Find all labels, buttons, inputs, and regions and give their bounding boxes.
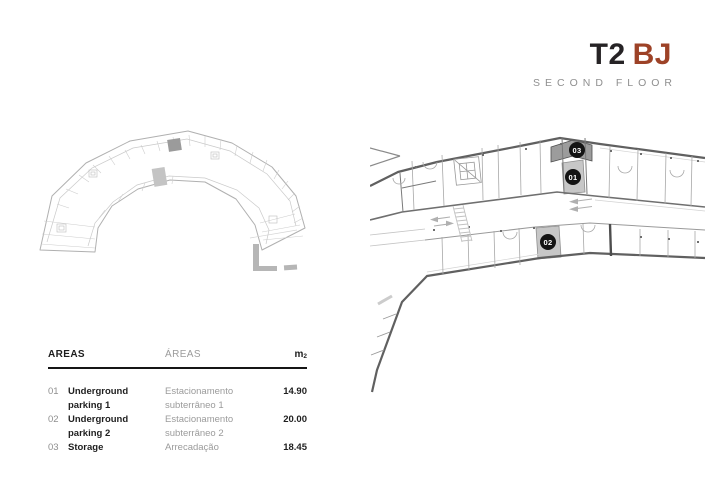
page-title: T2BJ <box>533 40 672 70</box>
table-row: 03 Storage Arrecadação 18.45 <box>48 441 307 455</box>
row-area-value: 14.90 <box>283 385 307 399</box>
areas-table: AREAS ÁREAS m2 01 Underground parking 1 … <box>48 349 307 455</box>
floor-subtitle: SECOND FLOOR <box>533 77 677 89</box>
header-areas-en: AREAS <box>48 349 165 360</box>
row-name-pt: Arrecadação <box>165 441 283 455</box>
header-unit: m2 <box>294 349 307 360</box>
overview-highlight-storage <box>167 138 182 152</box>
areas-table-header: AREAS ÁREAS m2 <box>48 349 307 360</box>
row-number: 01 <box>48 385 68 399</box>
row-name-en: Storage <box>68 441 165 455</box>
brochure-page: T2BJ SECOND FLOOR <box>0 0 705 498</box>
overview-floor-plan-drawing <box>33 126 313 301</box>
row-name-pt: Estacionamento subterrâneo 1 <box>165 385 283 413</box>
title-primary: T2 <box>590 38 626 71</box>
title-accent: BJ <box>633 38 672 71</box>
detail-floor-plan-drawing <box>370 128 705 395</box>
row-name-pt: Estacionamento subterrâneo 2 <box>165 413 283 441</box>
header-areas-pt: ÁREAS <box>165 349 294 360</box>
marker-badge-03: 03 <box>569 142 585 158</box>
table-rule <box>48 367 307 369</box>
row-number: 02 <box>48 413 68 427</box>
row-name-en: Underground parking 2 <box>68 413 165 441</box>
row-area-value: 20.00 <box>283 413 307 427</box>
title-block: T2BJ SECOND FLOOR <box>533 40 672 89</box>
marker-badge-02: 02 <box>540 234 556 250</box>
overview-highlight-parking <box>152 167 168 187</box>
row-number: 03 <box>48 441 68 455</box>
detail-floor-plan <box>370 128 705 395</box>
marker-badge-01: 01 <box>565 169 581 185</box>
areas-table-rows: 01 Underground parking 1 Estacionamento … <box>48 385 307 455</box>
row-name-en: Underground parking 1 <box>68 385 165 413</box>
overview-floor-plan <box>33 126 313 301</box>
row-area-value: 18.45 <box>283 441 307 455</box>
table-row: 01 Underground parking 1 Estacionamento … <box>48 385 307 413</box>
table-row: 02 Underground parking 2 Estacionamento … <box>48 413 307 441</box>
